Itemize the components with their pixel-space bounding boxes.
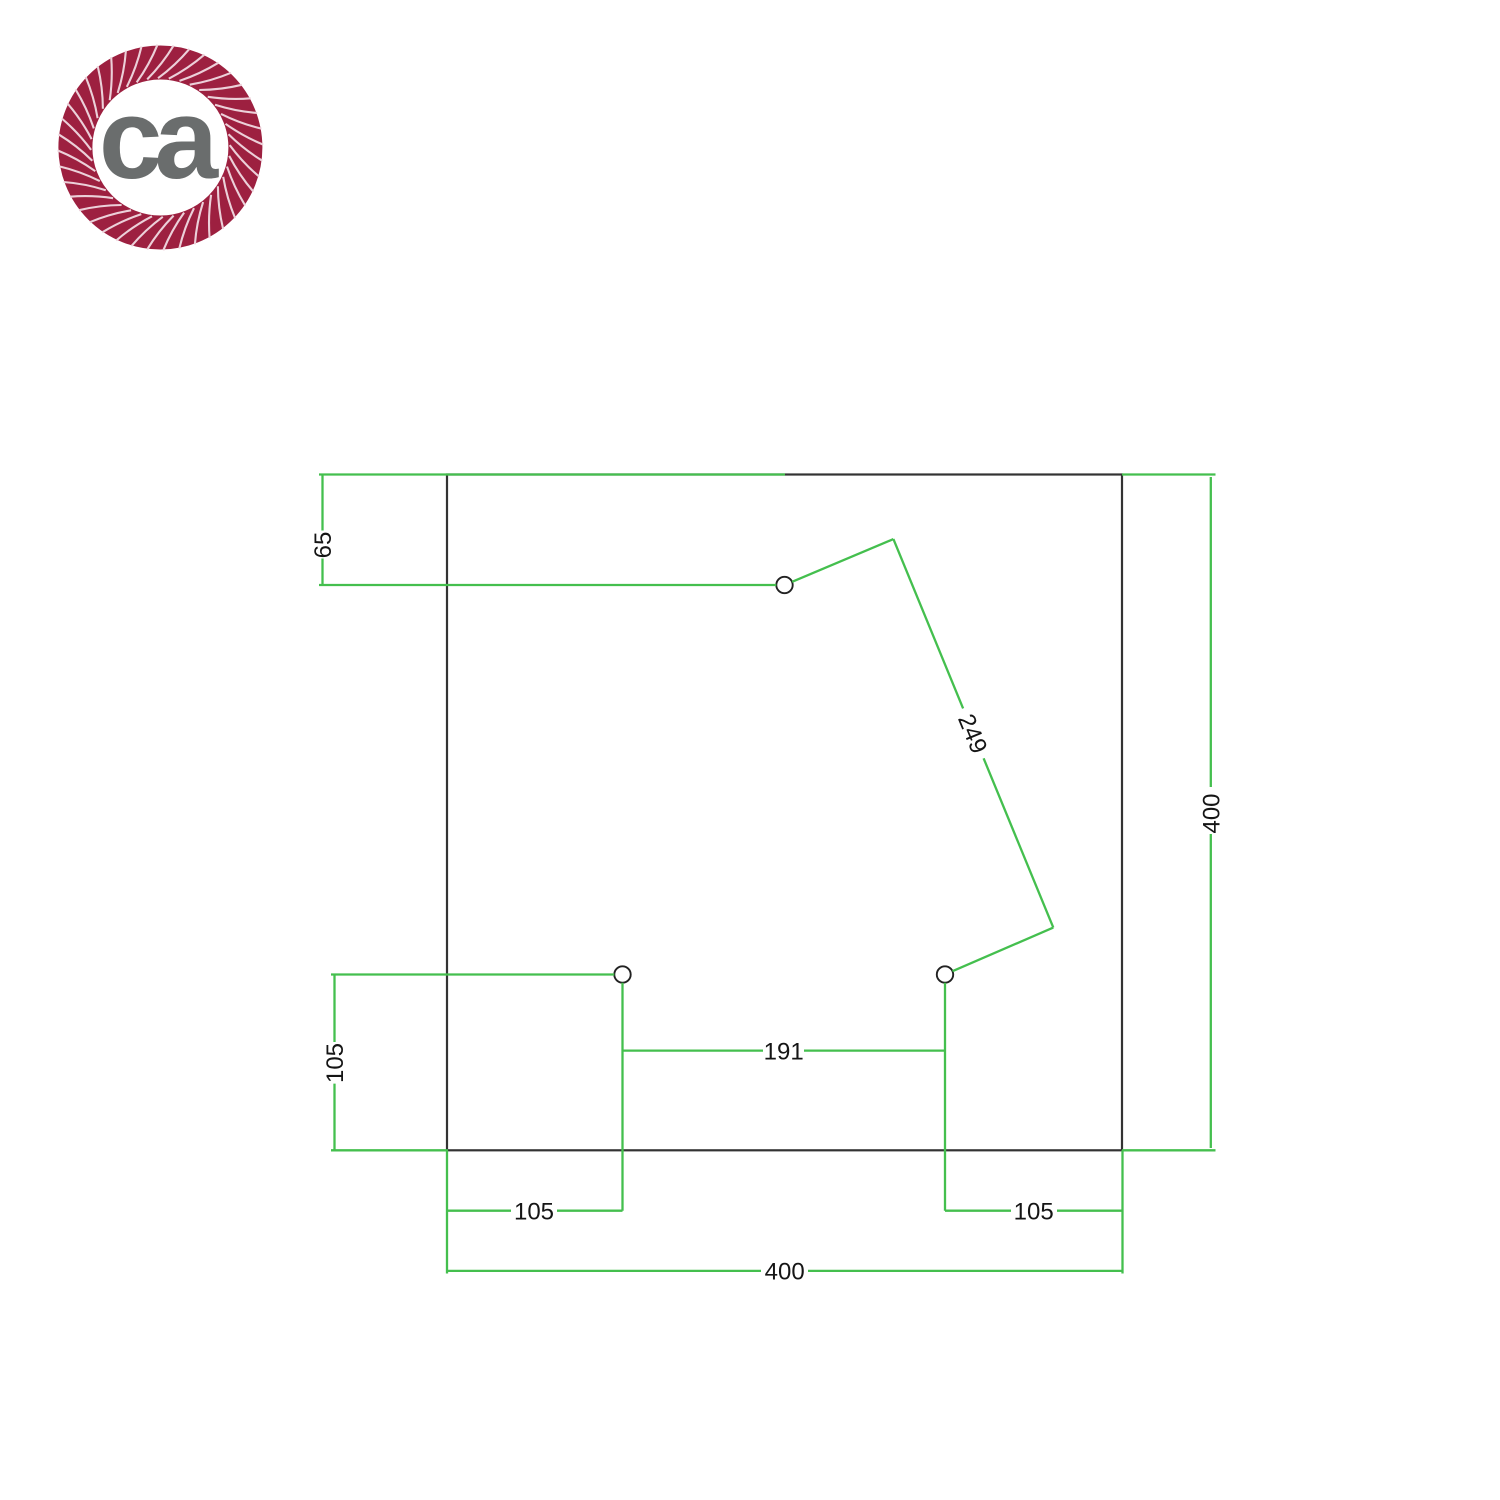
- svg-text:ca: ca: [99, 76, 220, 203]
- svg-text:65: 65: [310, 532, 337, 559]
- svg-text:191: 191: [764, 1039, 804, 1066]
- svg-text:400: 400: [1199, 793, 1226, 833]
- svg-text:105: 105: [322, 1043, 349, 1083]
- svg-text:105: 105: [514, 1198, 554, 1225]
- svg-text:400: 400: [765, 1259, 805, 1286]
- svg-text:105: 105: [1014, 1198, 1054, 1225]
